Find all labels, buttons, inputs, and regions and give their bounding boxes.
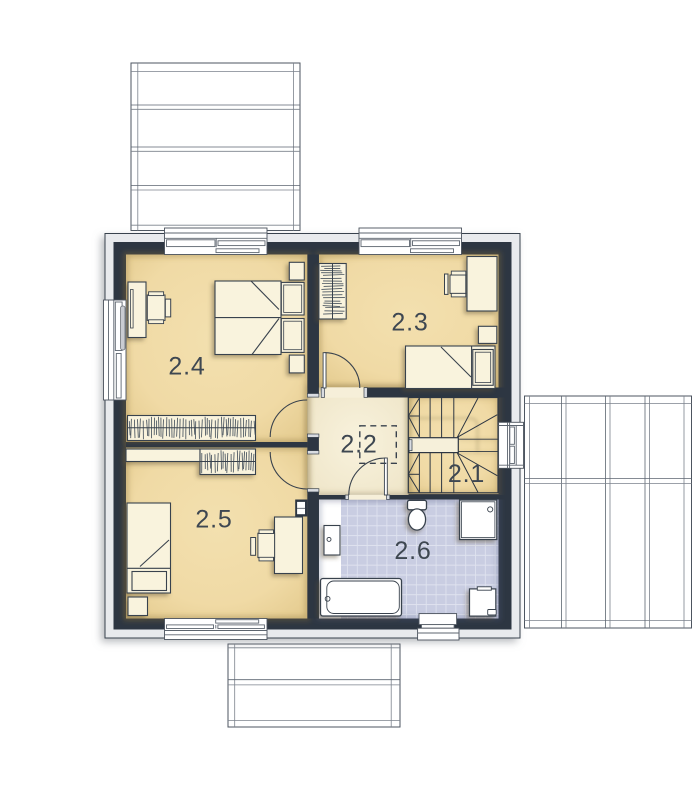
svg-text:2.1: 2.1 bbox=[448, 460, 485, 488]
svg-text:2.2: 2.2 bbox=[340, 431, 377, 459]
svg-text:2.6: 2.6 bbox=[394, 537, 431, 565]
svg-text:2.3: 2.3 bbox=[391, 309, 428, 337]
svg-text:2.5: 2.5 bbox=[195, 506, 232, 534]
svg-text:2.4: 2.4 bbox=[168, 353, 205, 381]
